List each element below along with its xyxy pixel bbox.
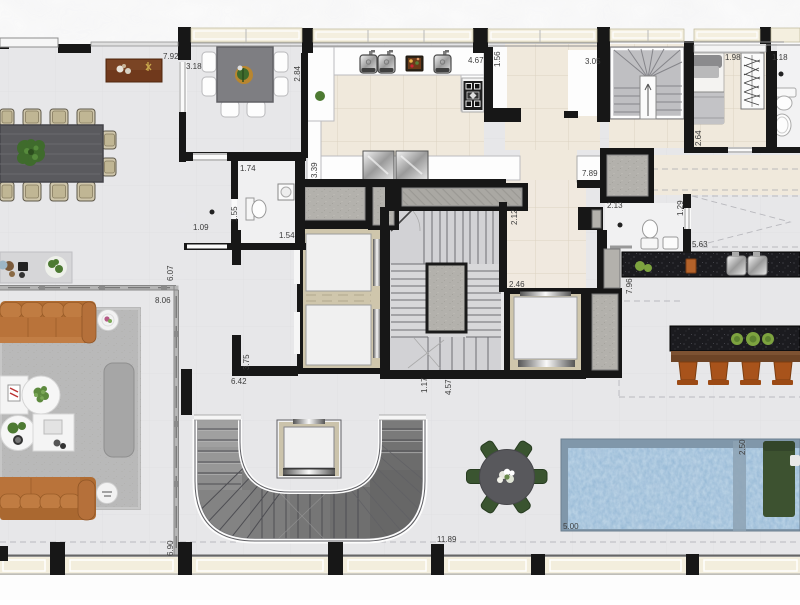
svg-text:3.39: 3.39 — [310, 162, 319, 178]
svg-text:2.84: 2.84 — [293, 65, 302, 81]
svg-text:1.29: 1.29 — [676, 200, 685, 216]
svg-text:2.13: 2.13 — [607, 201, 623, 210]
svg-text:1.09: 1.09 — [193, 223, 209, 232]
svg-text:3.18: 3.18 — [186, 62, 202, 71]
svg-text:2.12: 2.12 — [510, 209, 519, 225]
svg-text:2.46: 2.46 — [509, 280, 525, 289]
svg-text:3.75: 3.75 — [242, 354, 251, 370]
svg-text:5.00: 5.00 — [563, 522, 579, 531]
svg-text:8.06: 8.06 — [155, 296, 171, 305]
svg-text:6.90: 6.90 — [166, 540, 175, 556]
svg-text:4.67: 4.67 — [468, 56, 484, 65]
svg-text:1.18: 1.18 — [772, 53, 788, 62]
svg-text:7.92: 7.92 — [163, 52, 179, 61]
svg-text:5.63: 5.63 — [692, 240, 708, 249]
svg-text:1.56: 1.56 — [493, 51, 502, 67]
svg-text:1.74: 1.74 — [240, 164, 256, 173]
svg-text:1.17: 1.17 — [420, 377, 429, 393]
svg-text:1.98: 1.98 — [725, 53, 741, 62]
svg-text:11.89: 11.89 — [437, 535, 457, 544]
svg-text:3.05: 3.05 — [585, 57, 601, 66]
svg-text:7.96: 7.96 — [625, 278, 634, 294]
svg-text:2.64: 2.64 — [694, 130, 703, 146]
svg-text:6.07: 6.07 — [166, 265, 175, 281]
svg-text:2.50: 2.50 — [738, 439, 747, 455]
svg-text:4.57: 4.57 — [444, 379, 453, 395]
svg-text:7.89: 7.89 — [582, 169, 598, 178]
svg-text:1.54: 1.54 — [279, 231, 295, 240]
svg-text:1.55: 1.55 — [230, 206, 239, 222]
svg-text:6.42: 6.42 — [231, 377, 247, 386]
